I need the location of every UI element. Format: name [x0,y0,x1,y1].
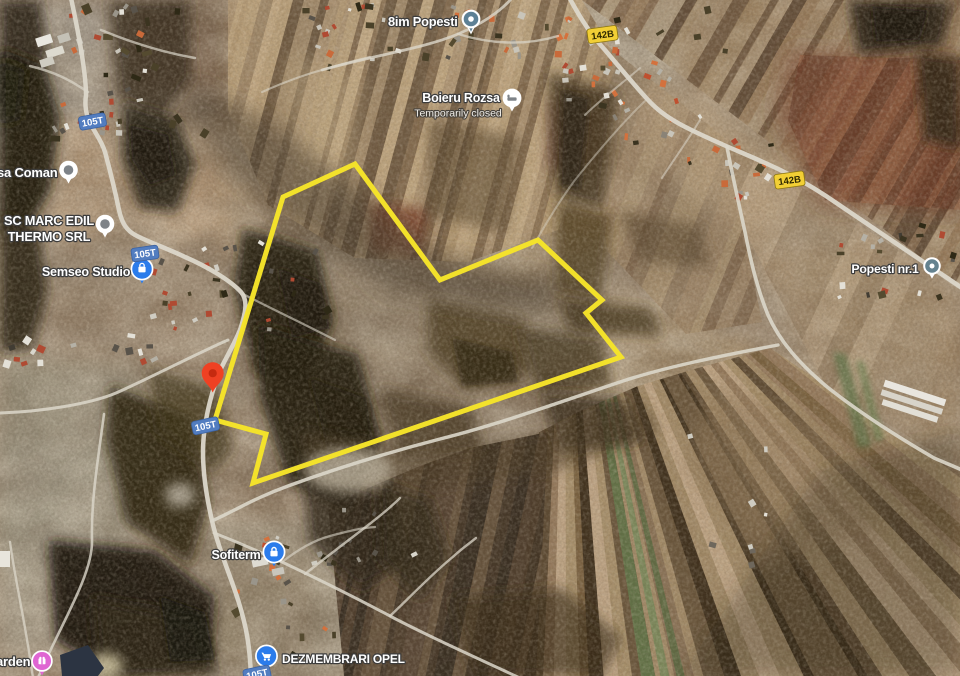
svg-text:Temporarily closed: Temporarily closed [414,108,502,120]
svg-text:THERMO SRL: THERMO SRL [8,229,91,244]
svg-text:SC MARC EDIL: SC MARC EDIL [4,213,94,228]
svg-text:Boieru Rozsa: Boieru Rozsa [422,91,501,105]
svg-text:arden: arden [0,654,31,669]
svg-text:sa Coman: sa Coman [0,165,58,180]
svg-text:Popesti nr.1: Popesti nr.1 [851,262,919,276]
svg-text:Sofiterm: Sofiterm [211,548,260,562]
svg-text:Semseo Studio: Semseo Studio [42,265,131,279]
svg-text:8im Popesti: 8im Popesti [388,14,458,29]
svg-text:DEZMEMBRARI OPEL: DEZMEMBRARI OPEL [282,652,405,666]
